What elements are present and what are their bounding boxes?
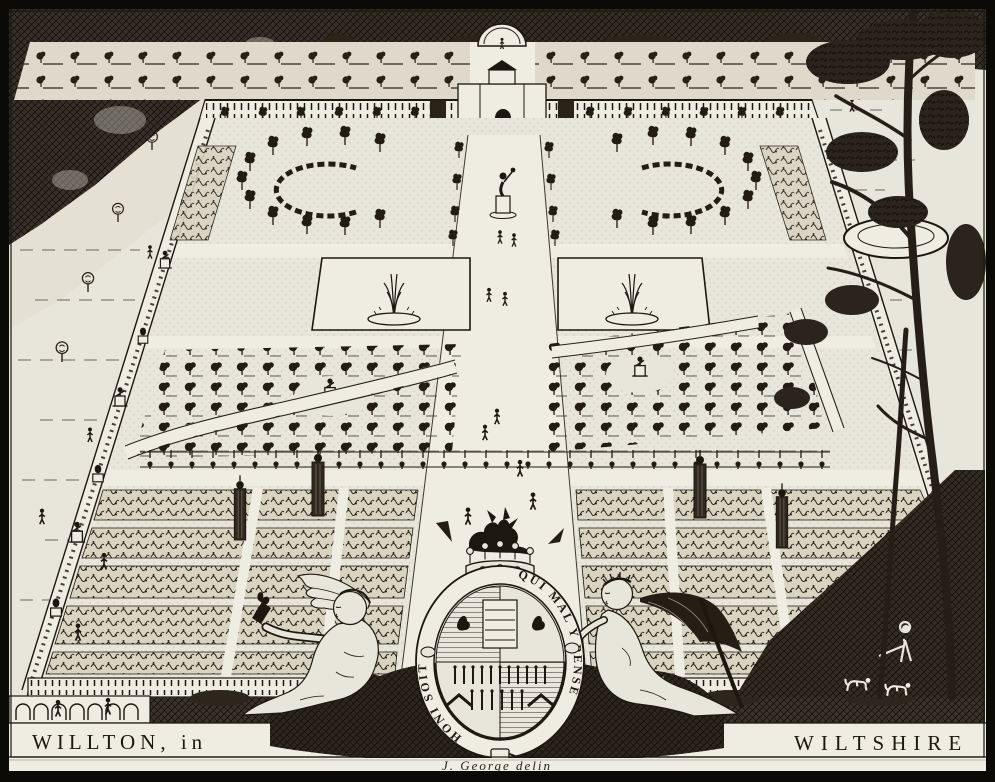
shield-arms <box>436 586 564 738</box>
putto-right-hand <box>565 643 579 653</box>
putto-left-hand <box>421 647 435 657</box>
caption-right: WILTSHIRE <box>794 731 968 755</box>
arcade-left <box>9 696 150 723</box>
fountain-court-left <box>312 258 470 330</box>
signature: J. George delin <box>442 758 552 773</box>
espalier-fence <box>140 450 830 469</box>
fountain-court-right <box>558 258 710 330</box>
signature-strip: J. George delin <box>9 758 986 773</box>
engraving-scene: WILLTON, in WILTSHIRE <box>0 0 995 782</box>
engraving-plate: WILLTON, in WILTSHIRE <box>0 0 995 782</box>
caption-left: WILLTON, in <box>32 730 207 754</box>
